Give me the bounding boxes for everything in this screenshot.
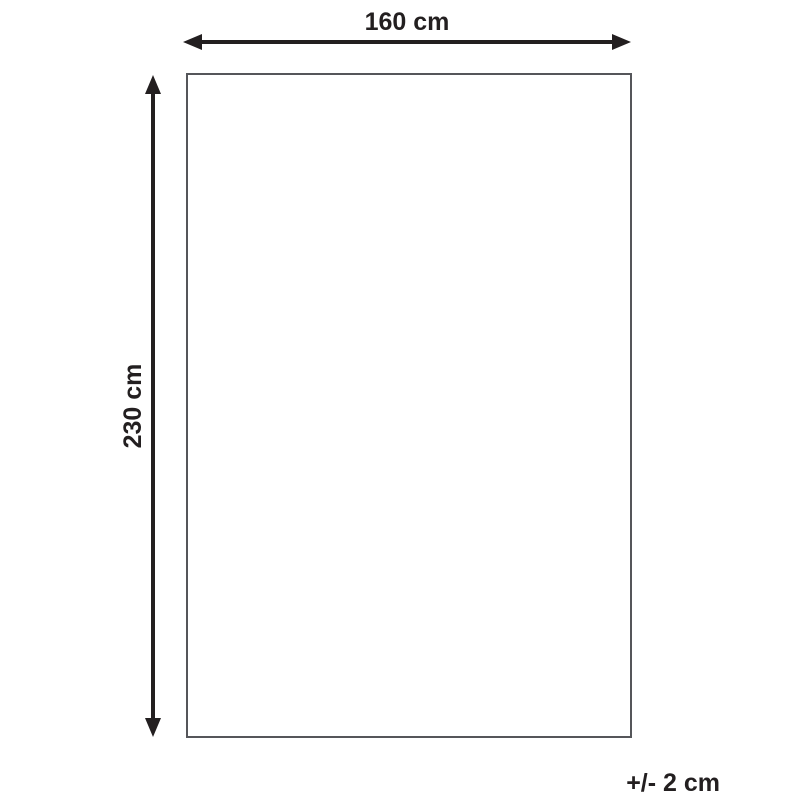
- width-dimension-label: 160 cm: [182, 8, 632, 36]
- dimension-diagram: 160 cm 230 cm +/- 2 cm: [0, 0, 800, 800]
- product-outline-rect: [186, 73, 632, 738]
- tolerance-label: +/- 2 cm: [626, 769, 720, 797]
- height-dimension-label: 230 cm: [119, 364, 147, 449]
